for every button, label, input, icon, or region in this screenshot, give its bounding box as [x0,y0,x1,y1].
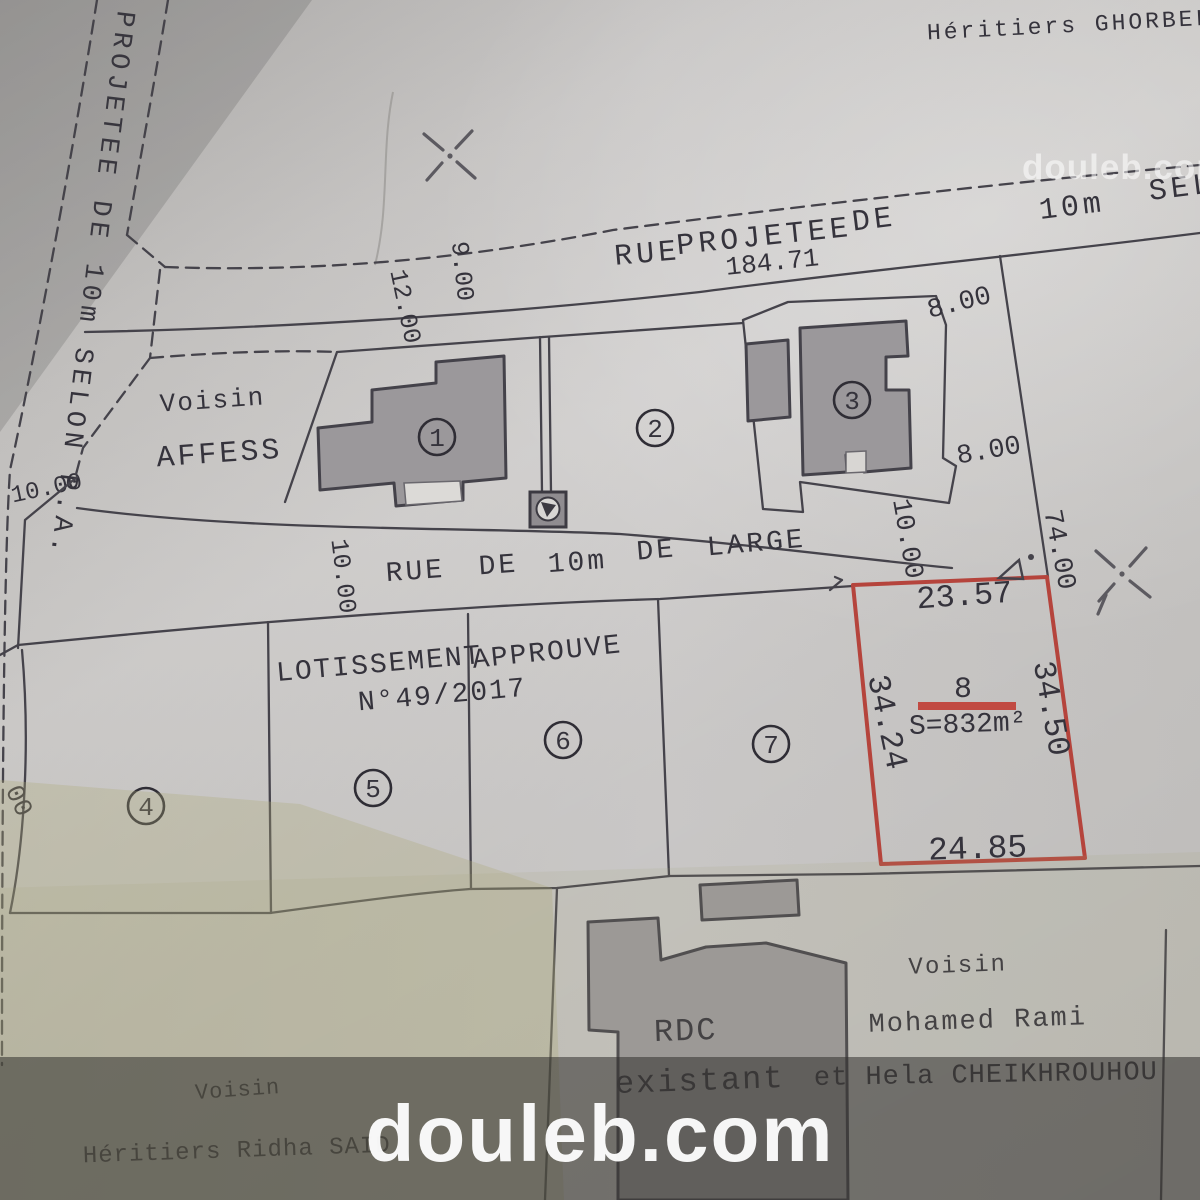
neighbor-west-line2: AFFESS [155,434,283,477]
rdc-label-line1: RDC [653,1012,718,1051]
subdivision-title-word2: APPROUVE [471,630,624,677]
brand-watermark-bottom: douleb.com [0,1088,1200,1180]
middle-road-word-de1: DE [478,550,520,584]
dim-12: 12.00 [382,267,426,346]
middle-road-bottom-line [0,586,853,655]
parcel-4-number: 4 [138,793,154,823]
west-road-bend [127,235,165,267]
middle-road-word-10m: 10m [547,546,608,581]
lot8-number: 8 [954,673,972,707]
parcel6-7-divider [658,599,669,876]
photographed-site-plan: PROJETEE DE 10m SELON P.A. 10.00 RUE PRO… [0,0,1200,1200]
parcel-7-number: 7 [763,731,779,761]
neighbor-north-label: Héritiers GHORBEL [926,6,1200,47]
dim-74: 74.00 [1035,507,1080,592]
north-road-word-10m: 10m [1037,187,1107,229]
lot8-dim-right: 34.50 [1024,658,1077,759]
parcel-1-number: 1 [429,424,445,454]
parcel-3-number: 3 [844,387,860,417]
parcel4-5-divider [268,622,271,913]
lot-8: 23.57 34.24 34.50 24.85 8 S=832m² [853,554,1085,870]
utility-structure [530,492,566,527]
parcel-2-number: 2 [647,415,663,445]
dim-partial-00: 00 [0,781,39,822]
paper-crease [375,92,393,265]
middle-road-word-de2: DE [635,534,677,568]
west-road: PROJETEE DE 10m SELON P.A. 10.00 [2,0,168,1065]
lot8-area: S=832m² [908,708,1027,743]
dim-m10-left: 10.00 [323,537,361,615]
lot8-dim-bottom: 24.85 [928,829,1028,869]
survey-cross-top [424,131,475,180]
dim-8b: 8.00 [954,432,1023,473]
site-plan-drawing: PROJETEE DE 10m SELON P.A. 10.00 RUE PRO… [0,0,1200,1200]
neighbor-se-line2: Mohamed Rami [868,1003,1087,1041]
parcel-5-number: 5 [365,775,381,805]
brand-watermark-top: douleb.com [1022,148,1200,188]
neighbor-west-line1: Voisin [159,382,266,419]
south-block-bottom-boundary [10,866,1200,913]
neighbor-se-line1: Voisin [908,951,1007,981]
parcel2-top-boundary [543,323,743,337]
survey-cross-east [1096,548,1150,614]
middle-road-word-large: LARGE [706,525,807,565]
dim-e10: 10.00 [884,496,928,581]
north-arrow-dot [1028,554,1034,560]
dim-9: 9.00 [444,240,479,303]
building-1-notch [404,481,462,505]
dim-8a: 8.00 [924,282,994,327]
parcel1-2-divider [540,337,551,492]
middle-road: RUE DE 10m DE LARGE 10.00 [0,508,952,655]
small-building-footprint [700,880,799,920]
building-3-notch [846,451,866,473]
middle-road-word-rue: RUE [385,555,446,590]
building-3-annex [746,340,790,421]
parcel-6-number: 6 [555,727,571,757]
north-road-word-rue: RUE [613,235,682,275]
lot8-dim-top: 23.57 [915,575,1013,619]
north-road-word-de: DE [850,201,898,240]
north-road: RUE PROJETEE DE 10m SELON 184.71 9.00 12… [85,163,1200,347]
